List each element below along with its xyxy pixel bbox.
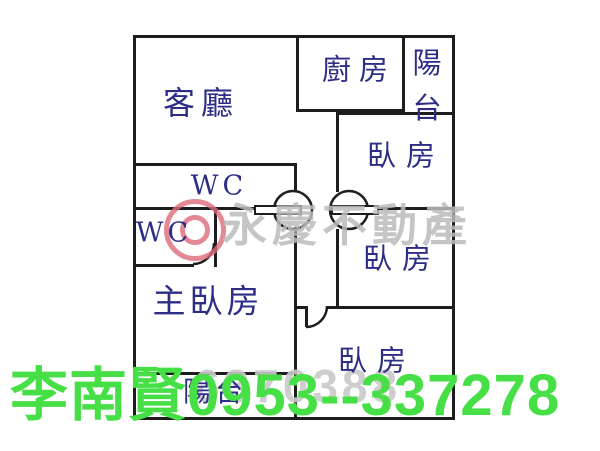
room-label-wc-lower: WC (136, 220, 192, 247)
room-label-balcony-top: 陽台 (411, 41, 443, 131)
room-label-living-room: 客廳 (163, 87, 239, 119)
room-label-kitchen: 廚房 (322, 56, 396, 85)
room-label-wc-upper: WC (191, 173, 247, 200)
floorplan-canvas: 永慶不動產 6370388 客廳 廚房 陽台 臥房 WC WC 主臥房 臥房 臥… (0, 0, 600, 451)
room-label-bedroom-top: 臥房 (367, 142, 445, 171)
door-arc-bedroom-bottom (306, 306, 327, 327)
room-label-bedroom-middle: 臥房 (363, 245, 441, 274)
agent-contact-overlay: 李南賢0953--337278 (10, 367, 560, 425)
room-label-master-bedroom: 主臥房 (153, 285, 264, 318)
